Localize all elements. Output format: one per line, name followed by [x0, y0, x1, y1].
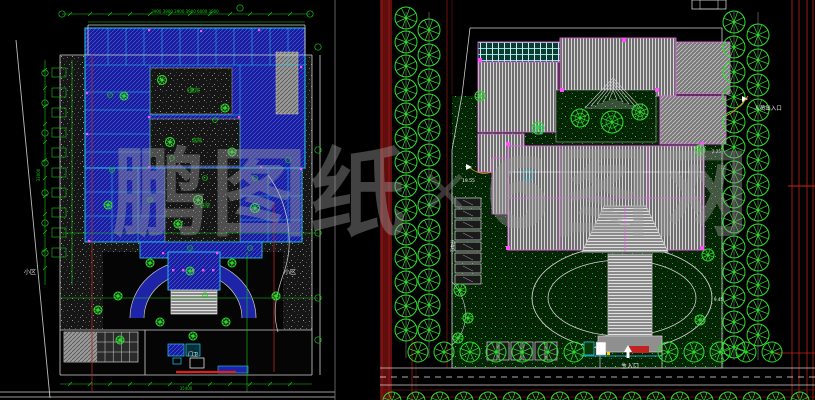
tree-symbol — [431, 392, 449, 400]
cad-canvas: 3900 3900 3900 3900 6000 3900 33000 3540… — [0, 0, 815, 400]
tree-symbol — [503, 392, 521, 400]
district-right: 小区 — [284, 268, 296, 276]
person-entrance-label: 人员出入口 — [754, 104, 782, 112]
district-left: 小区 — [24, 268, 36, 276]
tree-symbol — [479, 392, 497, 400]
tree-symbol — [455, 392, 473, 400]
tree-symbol — [767, 392, 785, 400]
left-floor-plan — [0, 0, 335, 400]
left-bottom-dim: 35400 — [180, 386, 193, 391]
tree-symbol — [695, 392, 713, 400]
main-entrance-label: 主入口 — [621, 362, 639, 370]
tree-symbol — [791, 392, 809, 400]
court1-label: 庭院 — [190, 87, 200, 94]
parking-label: 停车位 — [450, 240, 456, 252]
tree-symbol — [736, 342, 756, 362]
tree-symbol — [551, 392, 569, 400]
court2-label: 庭院 — [192, 137, 202, 144]
right-site-plan — [380, 0, 815, 400]
tree-symbol — [527, 392, 545, 400]
elevation-label: 19.55 — [462, 178, 475, 184]
tree-symbol — [434, 342, 454, 362]
parking-grid — [64, 332, 138, 362]
tree-symbol — [647, 392, 665, 400]
tree-symbol — [719, 392, 737, 400]
tree-symbol — [762, 342, 782, 362]
tree-symbol — [671, 392, 689, 400]
gate-label: 门卫 — [188, 351, 198, 358]
bottom-road — [380, 368, 815, 385]
tree-symbol — [408, 342, 428, 362]
dim-a-label: 2.25 — [712, 149, 721, 154]
court3-label: 庭院 — [200, 202, 210, 209]
left-top-dims: 3900 3900 3900 3900 6000 3900 — [151, 9, 219, 14]
tree-symbol — [743, 392, 761, 400]
tree-symbol — [623, 392, 641, 400]
dim-b-label: 9.45 — [714, 297, 723, 302]
tree-symbol — [575, 392, 593, 400]
tree-symbol — [599, 392, 617, 400]
left-side-dim: 33000 — [36, 168, 41, 181]
cad-drawing: 3900 3900 3900 3900 6000 3900 33000 3540… — [0, 0, 815, 400]
